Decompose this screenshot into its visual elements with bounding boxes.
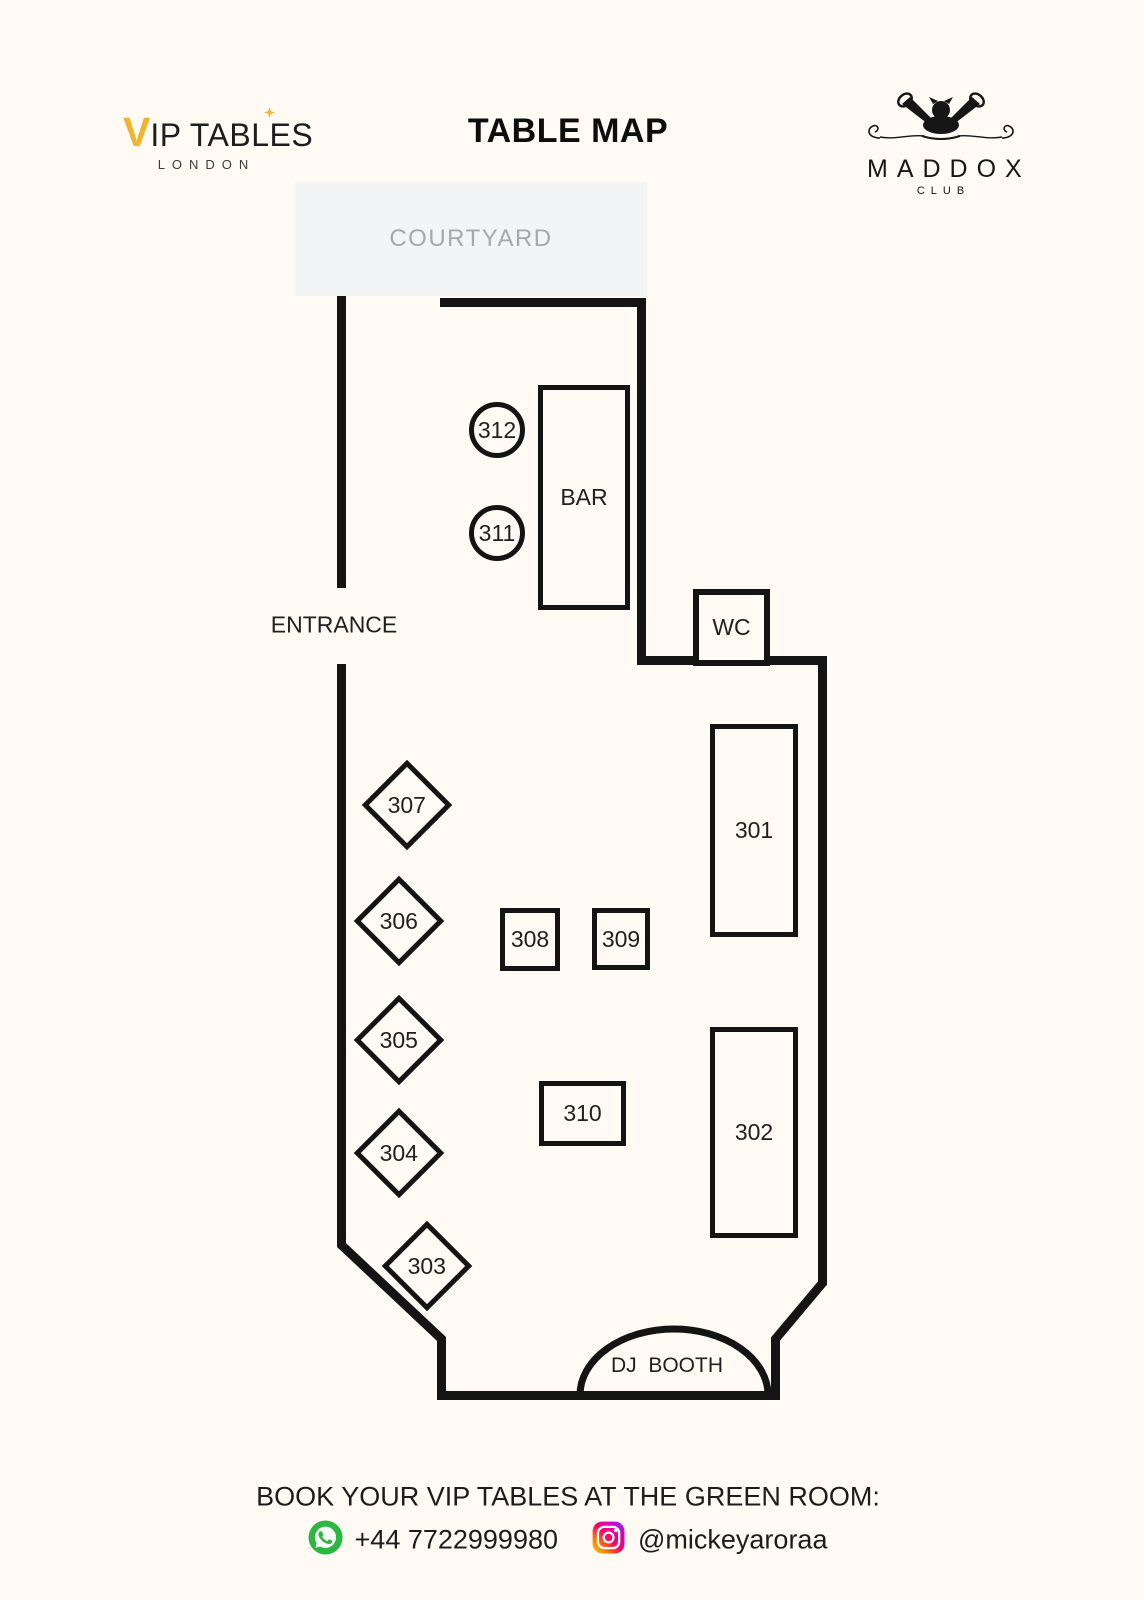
table-303-label: 303 <box>408 1253 446 1280</box>
booking-heading: BOOK YOUR VIP TABLES AT THE GREEN ROOM: <box>256 1482 880 1513</box>
table-302-label: 302 <box>735 1119 773 1146</box>
whatsapp-icon <box>309 1521 343 1560</box>
wc-label: WC <box>712 614 750 641</box>
table-311-label: 311 <box>479 520 516 547</box>
table-305-label: 305 <box>380 1027 418 1054</box>
table-304-label: 304 <box>380 1140 418 1167</box>
instagram-icon <box>592 1521 626 1560</box>
instagram-handle: @mickeyaroraa <box>638 1525 827 1556</box>
table-301: 301 <box>710 724 798 937</box>
table-302: 302 <box>710 1027 798 1238</box>
entrance-label: ENTRANCE <box>271 612 398 639</box>
dj-booth-label: DJ BOOTH <box>611 1354 723 1378</box>
table-308: 308 <box>500 908 560 971</box>
floor-plan-walls <box>0 0 1144 1600</box>
table-311: 311 <box>469 505 525 561</box>
table-312: 312 <box>469 402 525 458</box>
bar-area: BAR <box>538 385 630 610</box>
table-308-label: 308 <box>511 926 549 953</box>
table-309-label: 309 <box>602 926 640 953</box>
table-307-label: 307 <box>388 792 426 819</box>
table-309: 309 <box>592 908 650 970</box>
table-312-label: 312 <box>478 417 516 444</box>
contact-row: +44 7722999980 @mickeyaroraa <box>309 1521 828 1560</box>
table-306-label: 306 <box>380 908 418 935</box>
table-301-label: 301 <box>735 817 773 844</box>
wc-area: WC <box>693 589 770 666</box>
bar-label: BAR <box>560 484 607 511</box>
whatsapp-number: +44 7722999980 <box>355 1525 558 1556</box>
table-310-label: 310 <box>563 1100 601 1127</box>
table-310: 310 <box>539 1081 626 1146</box>
